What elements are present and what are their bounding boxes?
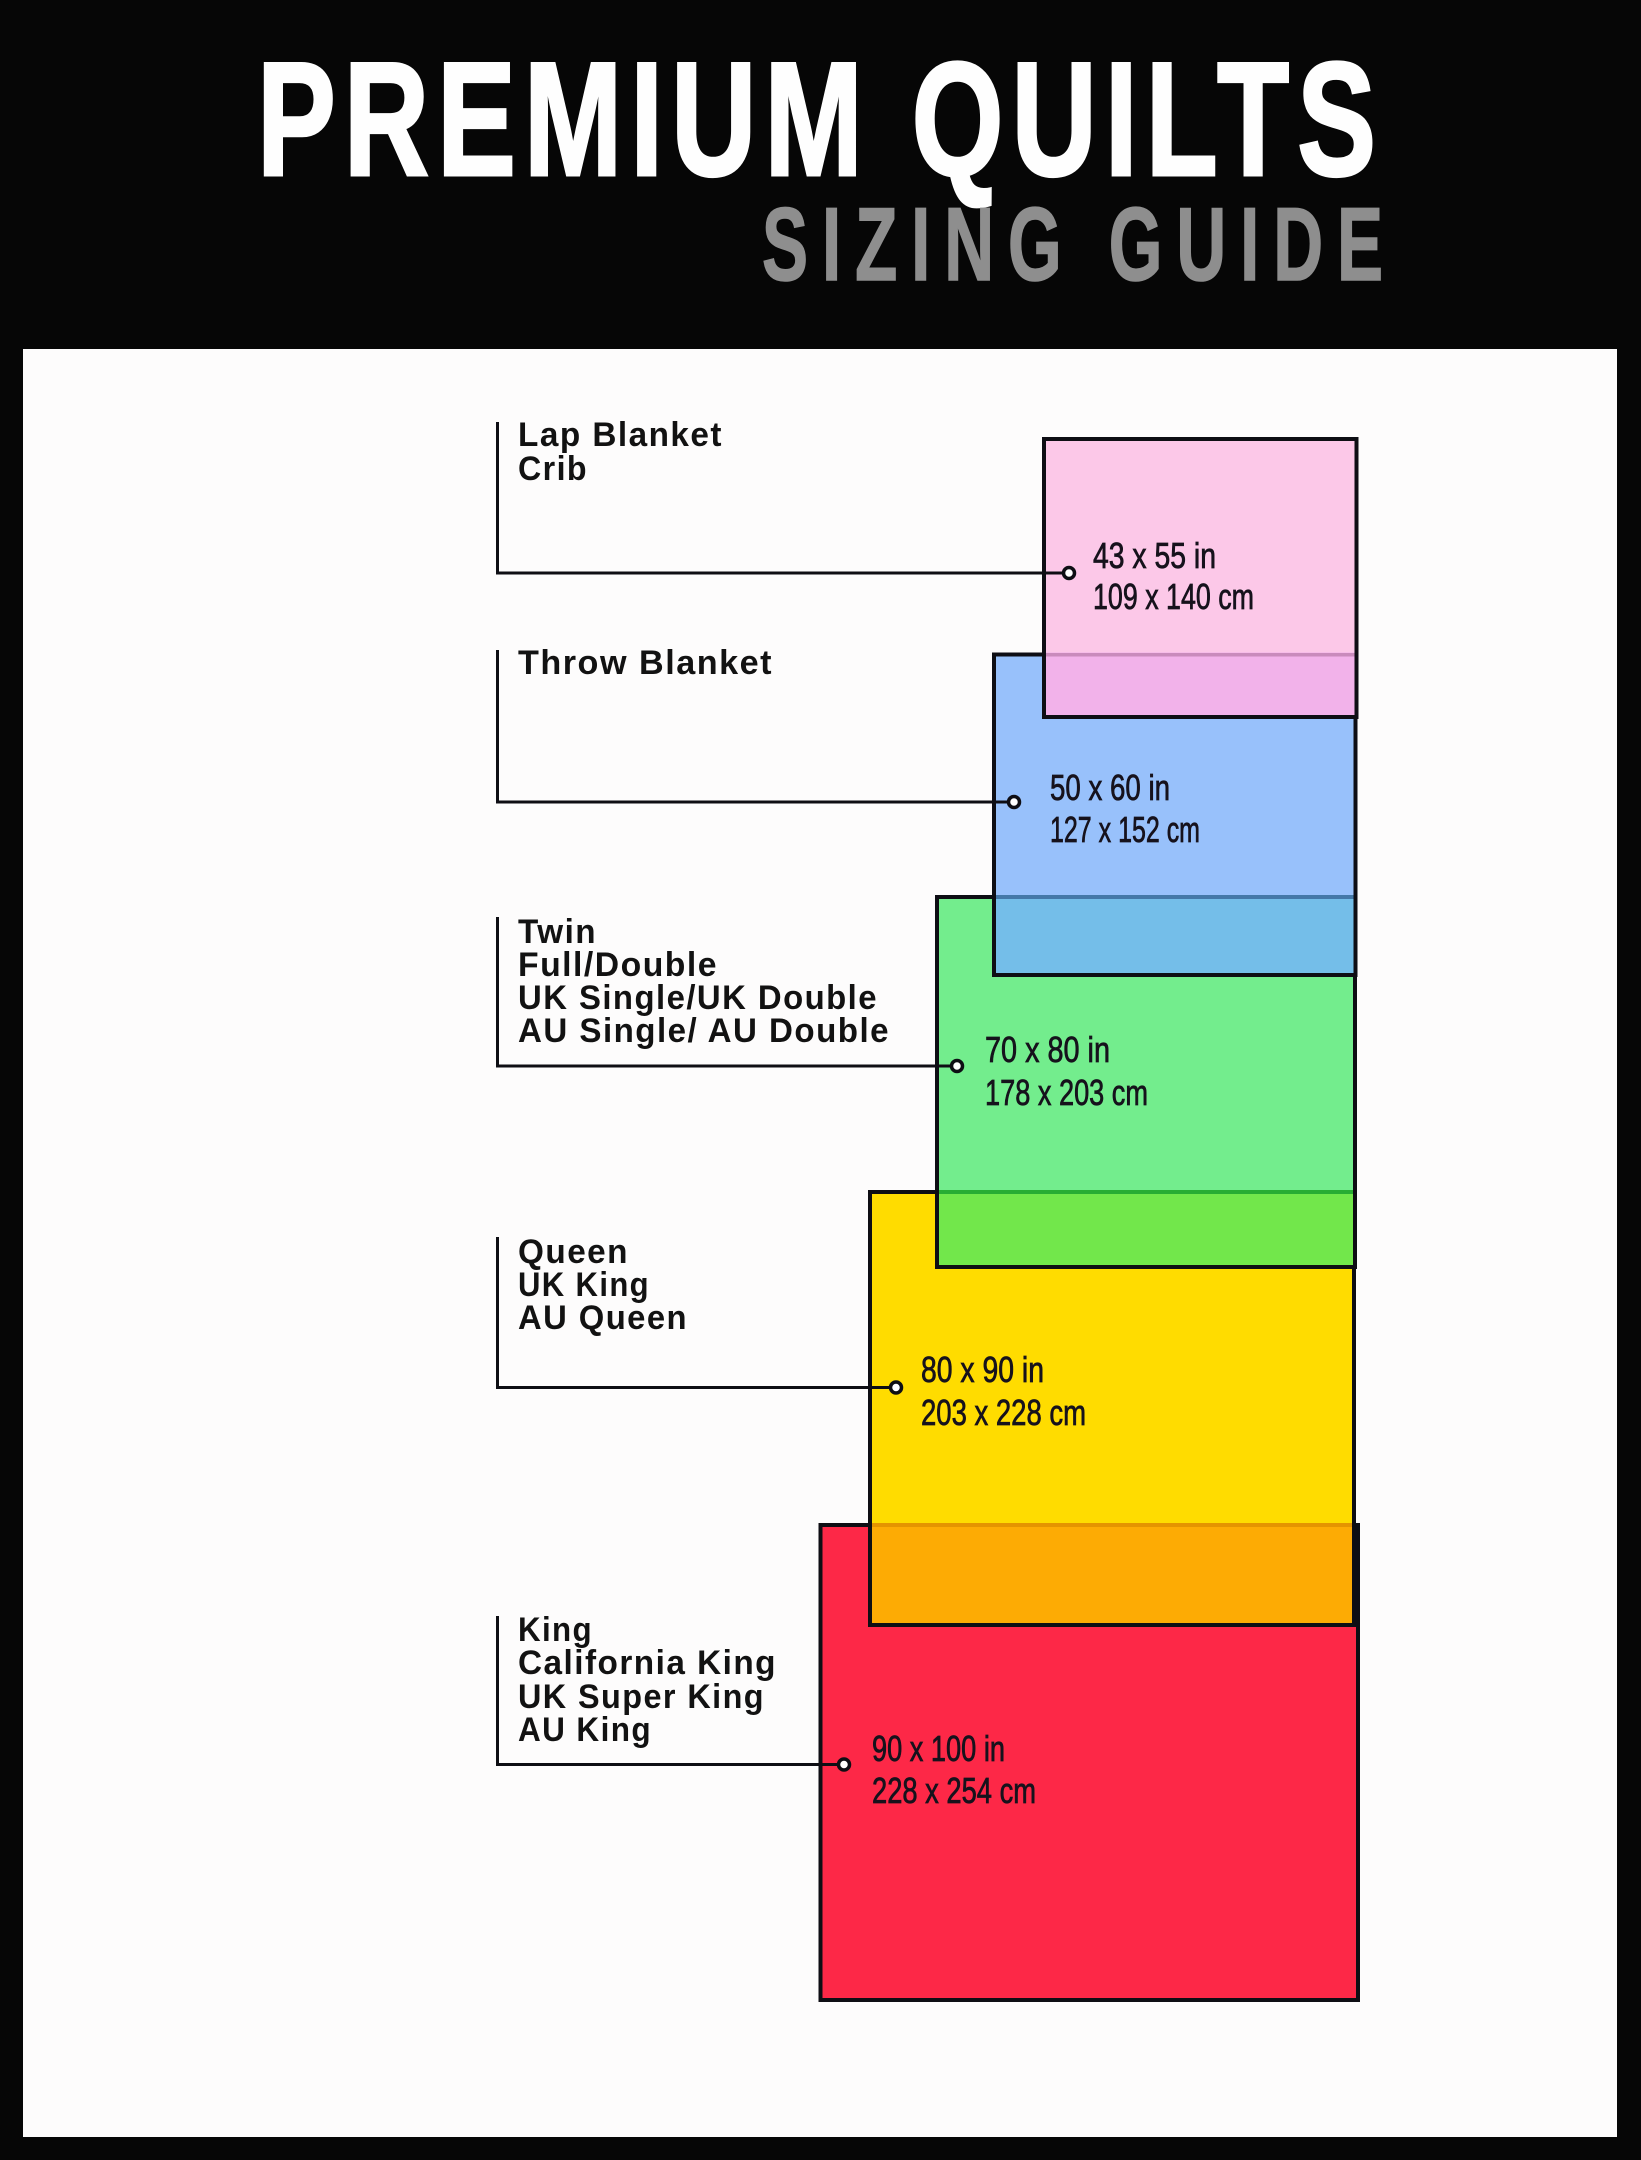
svg-text:AU Queen: AU Queen [518,1299,688,1337]
svg-text:228 x 254 cm: 228 x 254 cm [872,1770,1036,1811]
svg-text:80 x 90 in: 80 x 90 in [921,1349,1044,1390]
svg-text:90 x 100 in: 90 x 100 in [872,1728,1005,1769]
svg-text:Throw Blanket: Throw Blanket [518,644,773,682]
svg-text:Lap Blanket: Lap Blanket [518,416,723,454]
svg-text:109 x 140 cm: 109 x 140 cm [1093,576,1254,617]
svg-text:43 x 55 in: 43 x 55 in [1093,535,1216,576]
svg-text:SIZING GUIDE: SIZING GUIDE [762,187,1397,303]
svg-text:California King: California King [518,1644,777,1682]
svg-text:PREMIUM QUILTS: PREMIUM QUILTS [257,29,1384,210]
svg-text:Crib: Crib [518,450,588,488]
svg-text:127 x 152 cm: 127 x 152 cm [1050,809,1200,850]
svg-text:203 x 228 cm: 203 x 228 cm [921,1392,1086,1433]
svg-text:50 x 60 in: 50 x 60 in [1050,767,1170,808]
svg-text:178 x 203 cm: 178 x 203 cm [985,1072,1148,1113]
svg-text:AU Single/ AU Double: AU Single/ AU Double [518,1012,890,1050]
svg-text:AU King: AU King [518,1711,652,1749]
svg-text:70 x 80 in: 70 x 80 in [985,1029,1110,1070]
